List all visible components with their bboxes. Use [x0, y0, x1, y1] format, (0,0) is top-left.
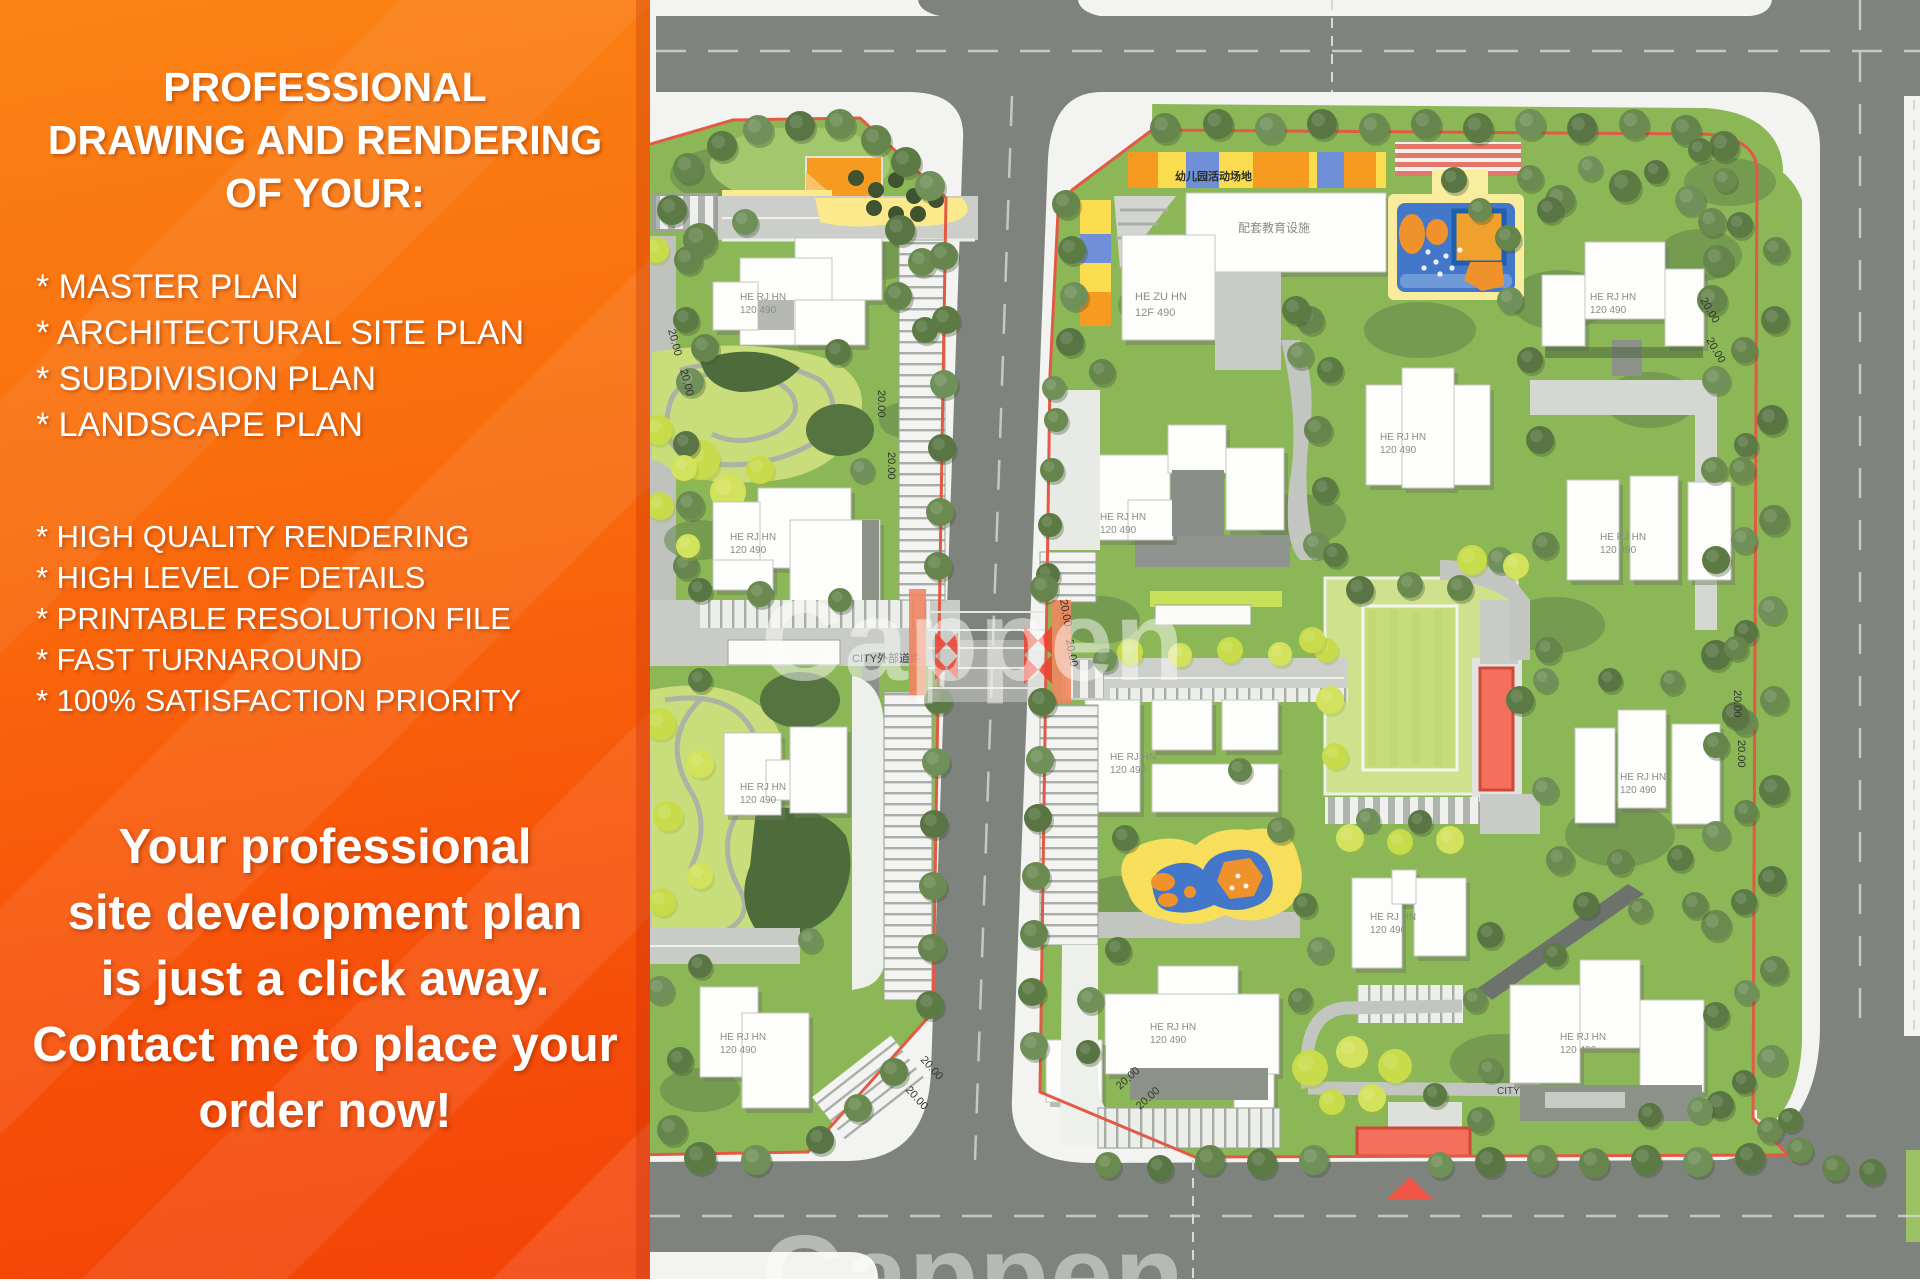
svg-text:120 490: 120 490 — [1380, 445, 1417, 456]
svg-text:HE RJ HN: HE RJ HN — [1380, 432, 1426, 443]
svg-text:配套教育设施: 配套教育设施 — [1238, 220, 1310, 235]
svg-text:120 490: 120 490 — [1150, 1035, 1187, 1046]
svg-text:120 490: 120 490 — [1370, 925, 1407, 936]
svg-text:HE RJ HN: HE RJ HN — [1150, 1022, 1196, 1033]
svg-text:120 490: 120 490 — [1560, 1045, 1597, 1056]
svg-text:HE RJ HN: HE RJ HN — [740, 782, 786, 793]
svg-text:Cappen: Cappen — [761, 578, 1185, 705]
svg-text:120 490: 120 490 — [1590, 305, 1627, 316]
svg-text:120 490: 120 490 — [1110, 765, 1147, 776]
svg-text:HE RJ HN: HE RJ HN — [740, 292, 786, 303]
svg-text:120 490: 120 490 — [1600, 545, 1637, 556]
svg-text:HE RJ HN: HE RJ HN — [1100, 512, 1146, 523]
svg-text:20.00: 20.00 — [875, 390, 887, 418]
svg-text:HE RJ HN: HE RJ HN — [1370, 912, 1416, 923]
svg-text:Cappen: Cappen — [761, 1213, 1185, 1279]
svg-text:HE RJ HN: HE RJ HN — [1600, 532, 1646, 543]
svg-text:幼儿园活动场地: 幼儿园活动场地 — [1175, 169, 1252, 183]
svg-text:20.00: 20.00 — [1731, 690, 1743, 718]
svg-text:120 490: 120 490 — [720, 1045, 757, 1056]
svg-text:120 490: 120 490 — [1620, 785, 1657, 796]
svg-text:20.00: 20.00 — [885, 452, 897, 480]
svg-text:HE RJ HN: HE RJ HN — [730, 532, 776, 543]
svg-text:HE RJ HN: HE RJ HN — [1560, 1032, 1606, 1043]
svg-text:HE ZU HN: HE ZU HN — [1135, 291, 1187, 303]
svg-text:120 490: 120 490 — [740, 305, 777, 316]
svg-text:HE RJ HN: HE RJ HN — [1590, 292, 1636, 303]
svg-text:12F 490: 12F 490 — [1135, 307, 1175, 319]
svg-text:HE RJ HN: HE RJ HN — [720, 1032, 766, 1043]
svg-text:120 490: 120 490 — [730, 545, 767, 556]
svg-text:20.00: 20.00 — [1735, 740, 1747, 768]
svg-text:HE RJ HN: HE RJ HN — [1110, 752, 1156, 763]
svg-text:HE RJ HN: HE RJ HN — [1620, 772, 1666, 783]
svg-text:120 490: 120 490 — [1100, 525, 1137, 536]
svg-text:120 490: 120 490 — [740, 795, 777, 806]
